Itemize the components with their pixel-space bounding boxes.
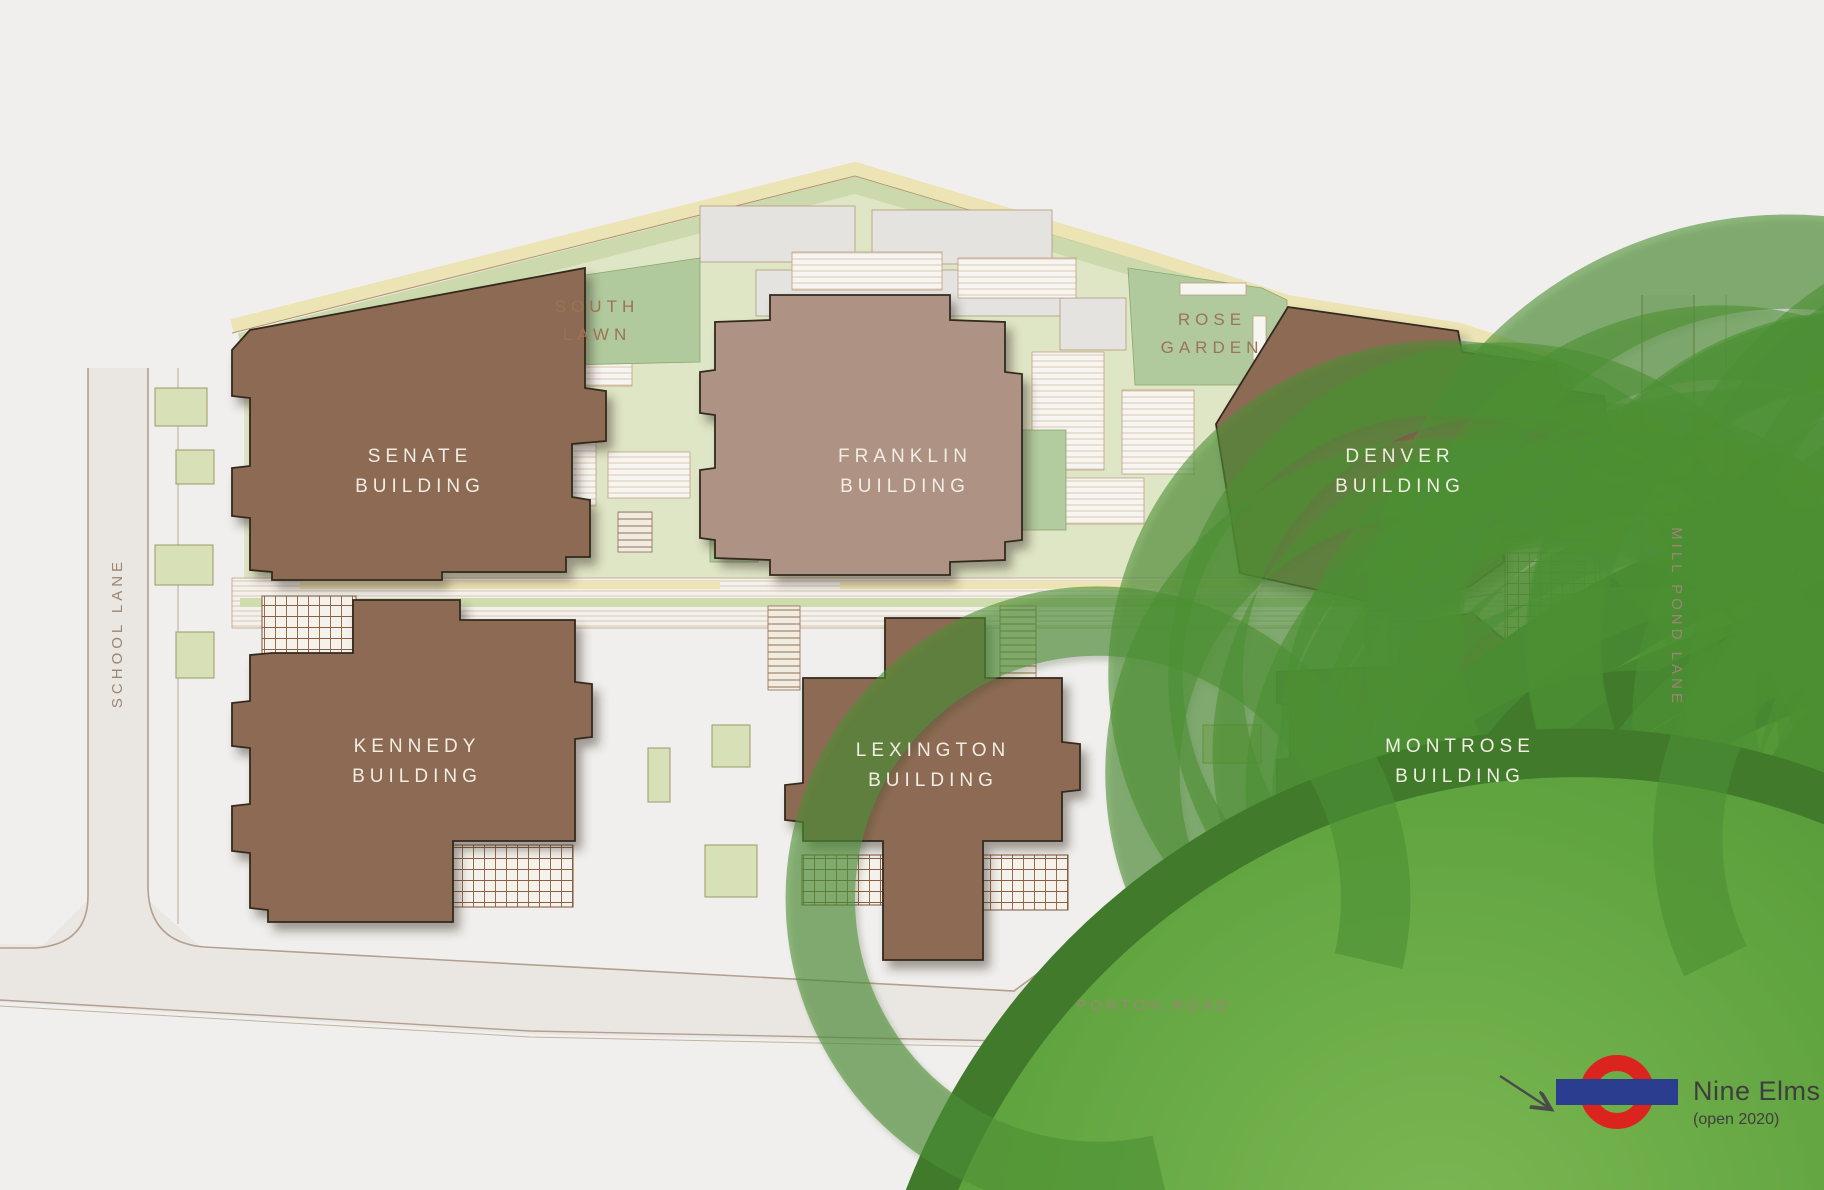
label-rose-garden: ROSE — [1178, 310, 1246, 329]
label-south-lawn: SOUTH — [555, 297, 640, 316]
label-denver-building: BUILDING — [1335, 476, 1465, 497]
stairs — [618, 512, 652, 552]
label-kennedy-building: BUILDING — [352, 766, 482, 787]
label-mill-pond-lane: MILL POND LANE — [1668, 527, 1685, 707]
label-school-lane: SCHOOL LANE — [109, 558, 126, 708]
label-kennedy-building: KENNEDY — [354, 736, 481, 757]
label-franklin-building: FRANKLIN — [838, 446, 972, 467]
label-ponton-road: PONTON ROAD — [1076, 997, 1231, 1014]
label-montrose-building: BUILDING — [1395, 766, 1525, 787]
label-montrose-building: MONTROSE — [1385, 736, 1535, 757]
label-lexington-building: LEXINGTON — [856, 740, 1010, 761]
station-open-date: (open 2020) — [1693, 1111, 1779, 1128]
label-lexington-building: BUILDING — [868, 770, 998, 791]
walkway-cream-strip — [300, 581, 720, 589]
label-senate-building: BUILDING — [355, 476, 485, 497]
underground-roundel-bar — [1556, 1079, 1678, 1105]
site-plan-page: SENATE BUILDING KENNEDY BUILDING FRANKLI… — [0, 0, 1824, 1190]
label-south-lawn: LAWN — [563, 325, 632, 344]
label-denver-building: DENVER — [1345, 446, 1454, 467]
label-rose-garden: GARDEN — [1161, 338, 1264, 357]
site-plan-map: SENATE BUILDING KENNEDY BUILDING FRANKLI… — [0, 0, 1824, 1190]
station-name: Nine Elms — [1693, 1076, 1821, 1106]
road-edge — [0, 368, 88, 948]
label-franklin-building: BUILDING — [840, 476, 970, 497]
label-senate-building: SENATE — [368, 446, 473, 467]
stairs — [768, 606, 800, 690]
building-franklin[interactable] — [700, 295, 1022, 575]
garden-bench — [1180, 283, 1246, 295]
school-lane-junction — [40, 900, 204, 950]
